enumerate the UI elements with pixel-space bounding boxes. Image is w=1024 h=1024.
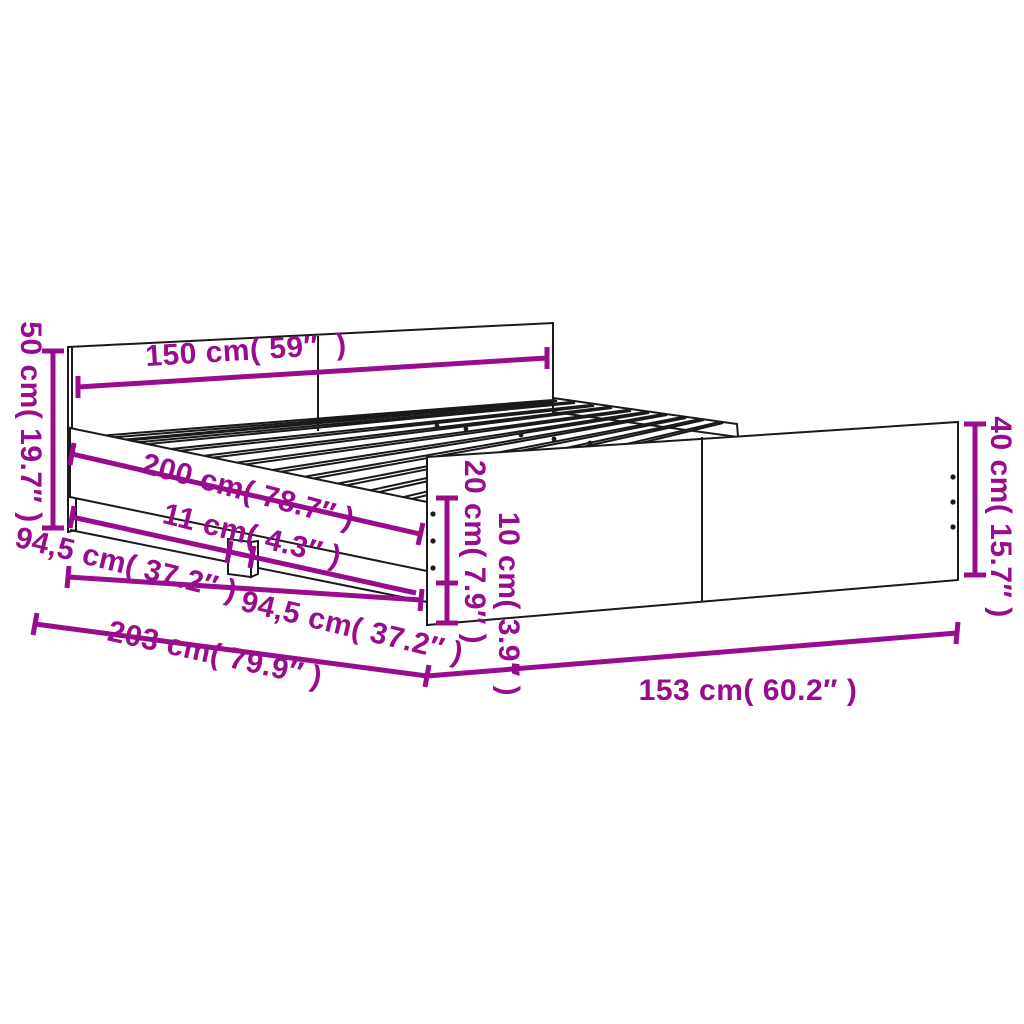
label-footboard-height: 40 cm( 15.7″ ) <box>985 416 1015 617</box>
clip-mark <box>435 424 440 429</box>
dim-line-footboard-height <box>964 424 986 575</box>
clip-mark <box>519 433 524 438</box>
screw-hole <box>950 524 955 529</box>
clip-mark <box>588 441 593 446</box>
label-ground-clearance: 10 cm( 3.9″ ) <box>493 512 523 696</box>
label-total-width: 153 cm( 60.2″ ) <box>639 676 858 706</box>
clip-mark <box>552 437 557 442</box>
bed-frame-dimension-diagram: 150 cm( 59″ ) 50 cm( 19.7″ ) 200 cm( 78.… <box>0 0 1024 1024</box>
screw-hole <box>430 538 435 543</box>
screw-hole <box>950 499 955 504</box>
label-headboard-height: 50 cm( 19.7″ ) <box>15 321 45 522</box>
clip-mark <box>464 427 469 432</box>
screw-hole <box>950 474 955 479</box>
screw-hole <box>430 511 435 516</box>
screw-hole <box>430 565 435 570</box>
label-side-rail-height: 20 cm( 7.9″ ) <box>459 460 489 644</box>
